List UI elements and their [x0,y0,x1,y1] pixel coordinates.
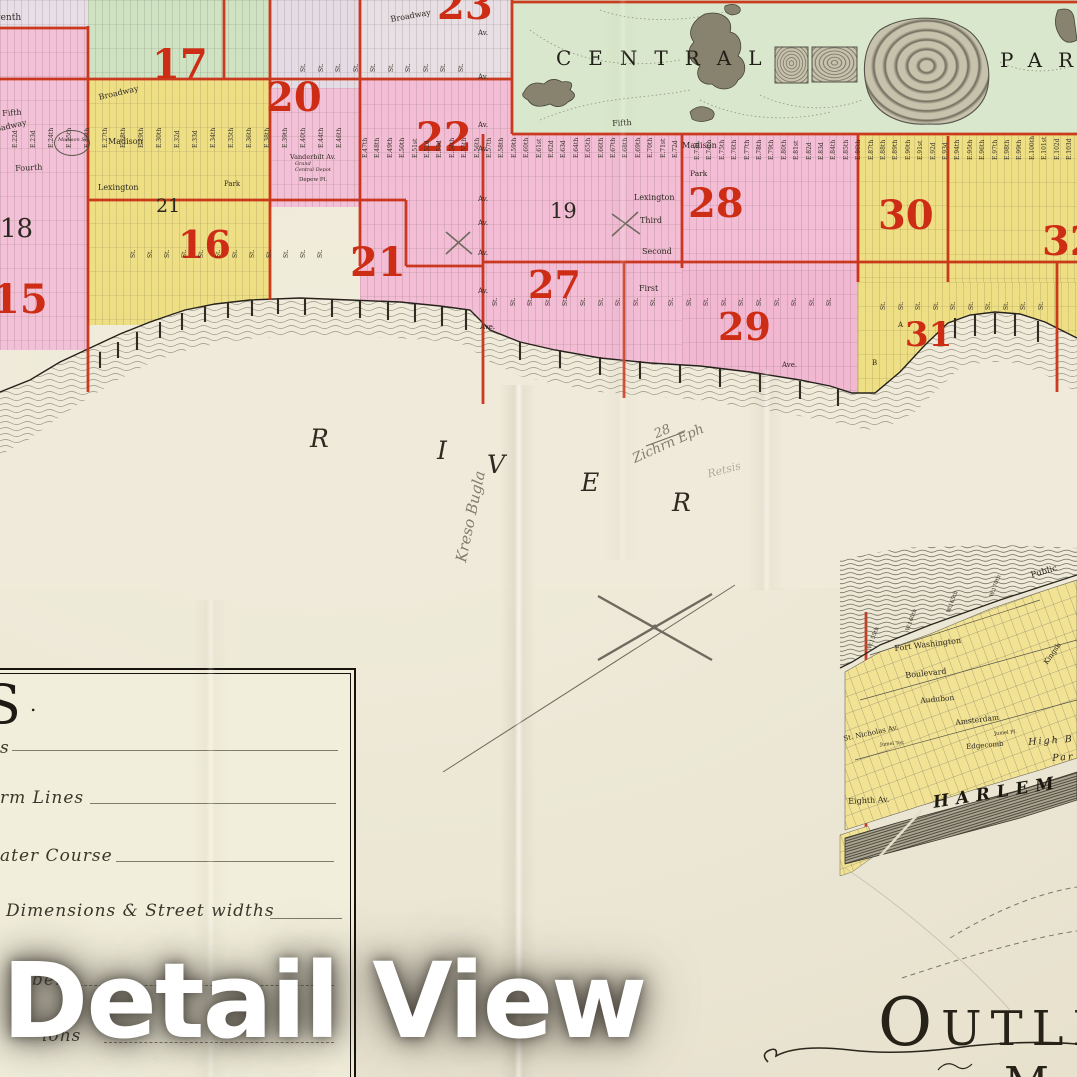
vanderbilt-ave-label: Vanderbilt Av. [290,154,336,161]
handwritten-faint-note: Retsis [706,459,742,480]
w-street-155: W.155th [868,627,881,650]
central-park-name-right: PARK [1000,50,1077,70]
atlas-map-page: CENTRAL PARK Fifth 15 16 17 20 21 22 23 … [0,0,1077,1077]
ward-number-21: 21 [156,197,180,216]
district-number-23: 23 [437,0,493,26]
district-number-15: 15 [0,280,48,320]
ave-label-27: Ave. [480,324,495,331]
third-ave-label: Third [640,217,662,225]
public-label: Public [1030,565,1058,581]
fort-washington-label: Fort Washington [894,637,962,653]
legend-title-fragment: S [0,678,21,732]
legend-rule-0 [12,750,338,751]
w-street-165: W.165th [947,591,960,614]
av-label-8: Av. [478,288,488,295]
district-number-20: 20 [266,78,322,118]
boulevard-label: Boulevard [905,668,947,680]
district-number-32: 32 [1042,222,1077,262]
second-ave-label: Second [642,248,672,256]
district-number-27: 27 [528,266,581,304]
st-label: St. [317,250,324,258]
district-number-21: 21 [350,243,406,283]
ward-number-18: 18 [0,216,33,242]
edgecomb-label: Edgecomb [966,741,1004,751]
district-number-16: 16 [178,226,231,264]
kingsbridge-label: Kingsb [1043,642,1063,666]
district-patch-31-yellow [858,282,1077,432]
district-number-28: 28 [688,184,744,224]
legend-item-2: ater Course [0,846,113,866]
av-label-1: Av. [478,30,488,37]
audubon-label: Audubon [920,694,955,704]
river-letter-v: V [487,450,505,479]
legend-item-1: rm Lines [0,788,84,808]
grand-central-depot-label: Grand Central Depot [295,162,331,174]
ave-label-29: Ave. [782,362,797,369]
first-ave-label: First [639,285,658,293]
depew-place-label: Depew Pl. [299,178,327,184]
lexington-ave-west-label: Lexington [98,184,139,192]
river-letter-r1: R [310,424,329,453]
district-number-29: 29 [718,308,771,346]
fifth-ave-park-label: Fifth [612,119,632,128]
harlem-river-label: HARLEM [932,775,1062,812]
legend-item-0: s [0,738,10,758]
av-label-3: Av. [478,122,488,129]
legend-rule-2 [116,861,334,862]
w-street-170: W.170th [990,575,1003,598]
block-letter-b: B [872,360,877,367]
madison-square-label: Madison Sq. [58,138,90,143]
river-letter-e: E [581,468,599,497]
av-label-4: Av. [478,146,488,153]
av-label-5: Av. [478,196,488,203]
jumel-place-label: Jumel Pl. [994,730,1017,737]
amsterdam-label: Amsterdam [955,714,999,727]
fifth-ave-west-label: Fifth [2,109,22,118]
high-bridge-park-label-1: High B [1028,735,1074,748]
st-label: St. [300,250,307,258]
madison-square-outline [54,130,90,156]
legend-rule-3 [270,918,342,919]
paper-crease-2 [748,370,784,590]
handwritten-vertical-note: Kreso Bugla [452,469,489,563]
district-number-17: 17 [152,45,208,85]
park-ave-east-label: Park [690,170,707,178]
seventh-ave-label: Seventh [0,14,21,23]
av-label-7: Av. [478,250,488,257]
outline-map-title: Outline [878,984,1077,1061]
st-nicholas-label: St. Nicholas Av. [843,724,899,742]
detail-view-watermark: Detail View [2,940,645,1062]
legend-title-period: . [30,694,36,714]
legend-item-3: Dimensions & Street widths [6,901,275,921]
river-letter-r2: R [672,488,691,517]
lexington-ave-east-label: Lexington [634,194,675,202]
av-label-6: Av. [478,220,488,227]
jumel-terrace-label: Jumel Ter. [880,742,905,749]
ward-number-19: 19 [550,201,577,222]
eighth-ave-label: Eighth Av. [848,796,890,806]
madison-ave-east-label: Madison [682,142,717,150]
w-street-160: W.160th [906,609,919,632]
district-number-30: 30 [878,196,934,236]
legend-rule-1 [90,803,336,804]
high-bridge-park-label-2: Par [1052,752,1075,763]
boundary-dashes [902,887,1077,978]
central-park-name-left: CENTRAL [556,48,779,68]
park-ave-west-label: Park [224,181,240,188]
river-letter-i: I [437,436,447,465]
st-label: St. [283,250,290,258]
block-letter-a: A [898,322,903,329]
district-number-22: 22 [416,118,472,158]
bridge-line [880,810,922,856]
madison-ave-west-label: Madison [108,138,143,146]
outline-map-title-second-line: M [1004,1058,1049,1077]
fourth-ave-label: Fourth [15,164,43,173]
av-label-2: Av. [478,74,488,81]
district-number-31: 31 [905,318,952,352]
